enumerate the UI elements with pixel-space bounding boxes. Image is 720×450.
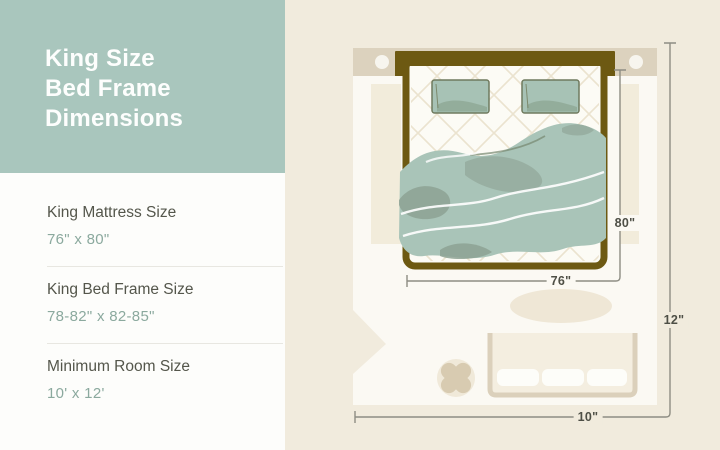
bed-icon bbox=[395, 51, 615, 266]
plant-icon bbox=[437, 359, 475, 397]
dresser-icon bbox=[490, 333, 635, 395]
title-line-2: Bed Frame bbox=[45, 74, 183, 104]
spec-value: 76" x 80" bbox=[47, 231, 283, 248]
spec-label: Minimum Room Size bbox=[47, 358, 283, 376]
title-line-3: Dimensions bbox=[45, 104, 183, 134]
infographic-canvas: 80" 76" 12" 10" King Size Bed Frame Dime… bbox=[0, 0, 720, 450]
sconce-icon bbox=[629, 55, 643, 69]
page-title: King Size Bed Frame Dimensions bbox=[45, 44, 183, 134]
headboard bbox=[395, 51, 615, 66]
bed-width-label: 76" bbox=[547, 273, 576, 289]
title-box: King Size Bed Frame Dimensions bbox=[0, 0, 285, 173]
pillow-icon bbox=[432, 80, 489, 113]
pillow-icon bbox=[522, 80, 579, 113]
spec-value: 10' x 12' bbox=[47, 385, 283, 402]
sconce-icon bbox=[375, 55, 389, 69]
spec-value: 78-82" x 82-85" bbox=[47, 308, 283, 325]
title-line-1: King Size bbox=[45, 44, 183, 74]
spec-label: King Mattress Size bbox=[47, 204, 283, 222]
rug-icon bbox=[510, 289, 612, 323]
info-panel: King Size Bed Frame Dimensions King Matt… bbox=[0, 0, 285, 450]
spec-item-minimum-room-size: Minimum Room Size 10' x 12' bbox=[47, 344, 283, 420]
room-length-label: 12" bbox=[660, 312, 689, 328]
room-width-label: 10" bbox=[574, 409, 603, 425]
spec-item-mattress-size: King Mattress Size 76" x 80" bbox=[47, 190, 283, 267]
spec-list: King Mattress Size 76" x 80" King Bed Fr… bbox=[47, 190, 283, 420]
bed-length-label: 80" bbox=[611, 215, 640, 231]
spec-item-bed-frame-size: King Bed Frame Size 78-82" x 82-85" bbox=[47, 267, 283, 344]
spec-label: King Bed Frame Size bbox=[47, 281, 283, 299]
